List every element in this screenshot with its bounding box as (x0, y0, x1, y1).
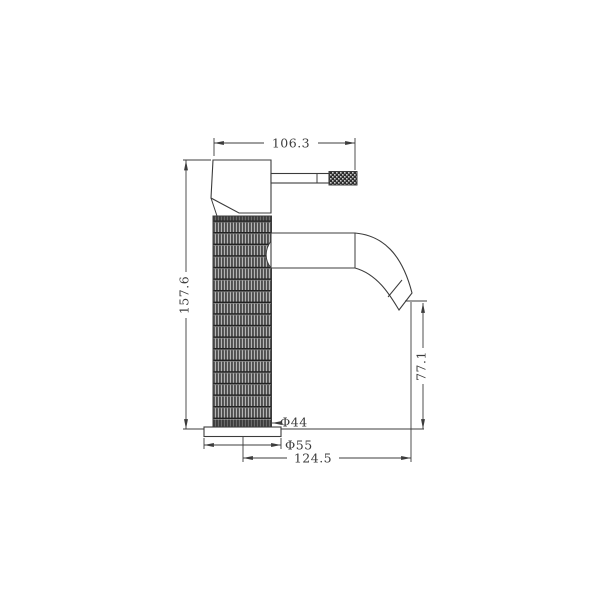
dim-label-body-diameter: Φ44 (280, 415, 308, 430)
body-top-ring (214, 217, 272, 223)
knurled-handle-grip (329, 172, 357, 186)
base-plate (204, 427, 281, 437)
knurled-body-column (213, 216, 272, 427)
dim-label-top-width: 106.3 (272, 136, 310, 151)
handle-housing (211, 160, 271, 213)
faucet-body (183, 160, 424, 437)
dim-spout-outlet-height: 77.1 (405, 301, 429, 429)
body-bottom-ring (214, 420, 272, 427)
dim-label-spout-reach: 124.5 (294, 451, 332, 466)
faucet-dimension-drawing: 106.3 157.6 77.1 Φ44 (0, 0, 600, 600)
dim-overall-height: 157.6 (177, 160, 212, 429)
technical-drawing-canvas: 106.3 157.6 77.1 Φ44 (0, 0, 600, 600)
dim-label-overall-height: 157.6 (177, 276, 192, 314)
spout (271, 233, 412, 310)
handle-lever-bar (271, 174, 329, 184)
dim-label-spout-outlet-height: 77.1 (414, 351, 429, 381)
